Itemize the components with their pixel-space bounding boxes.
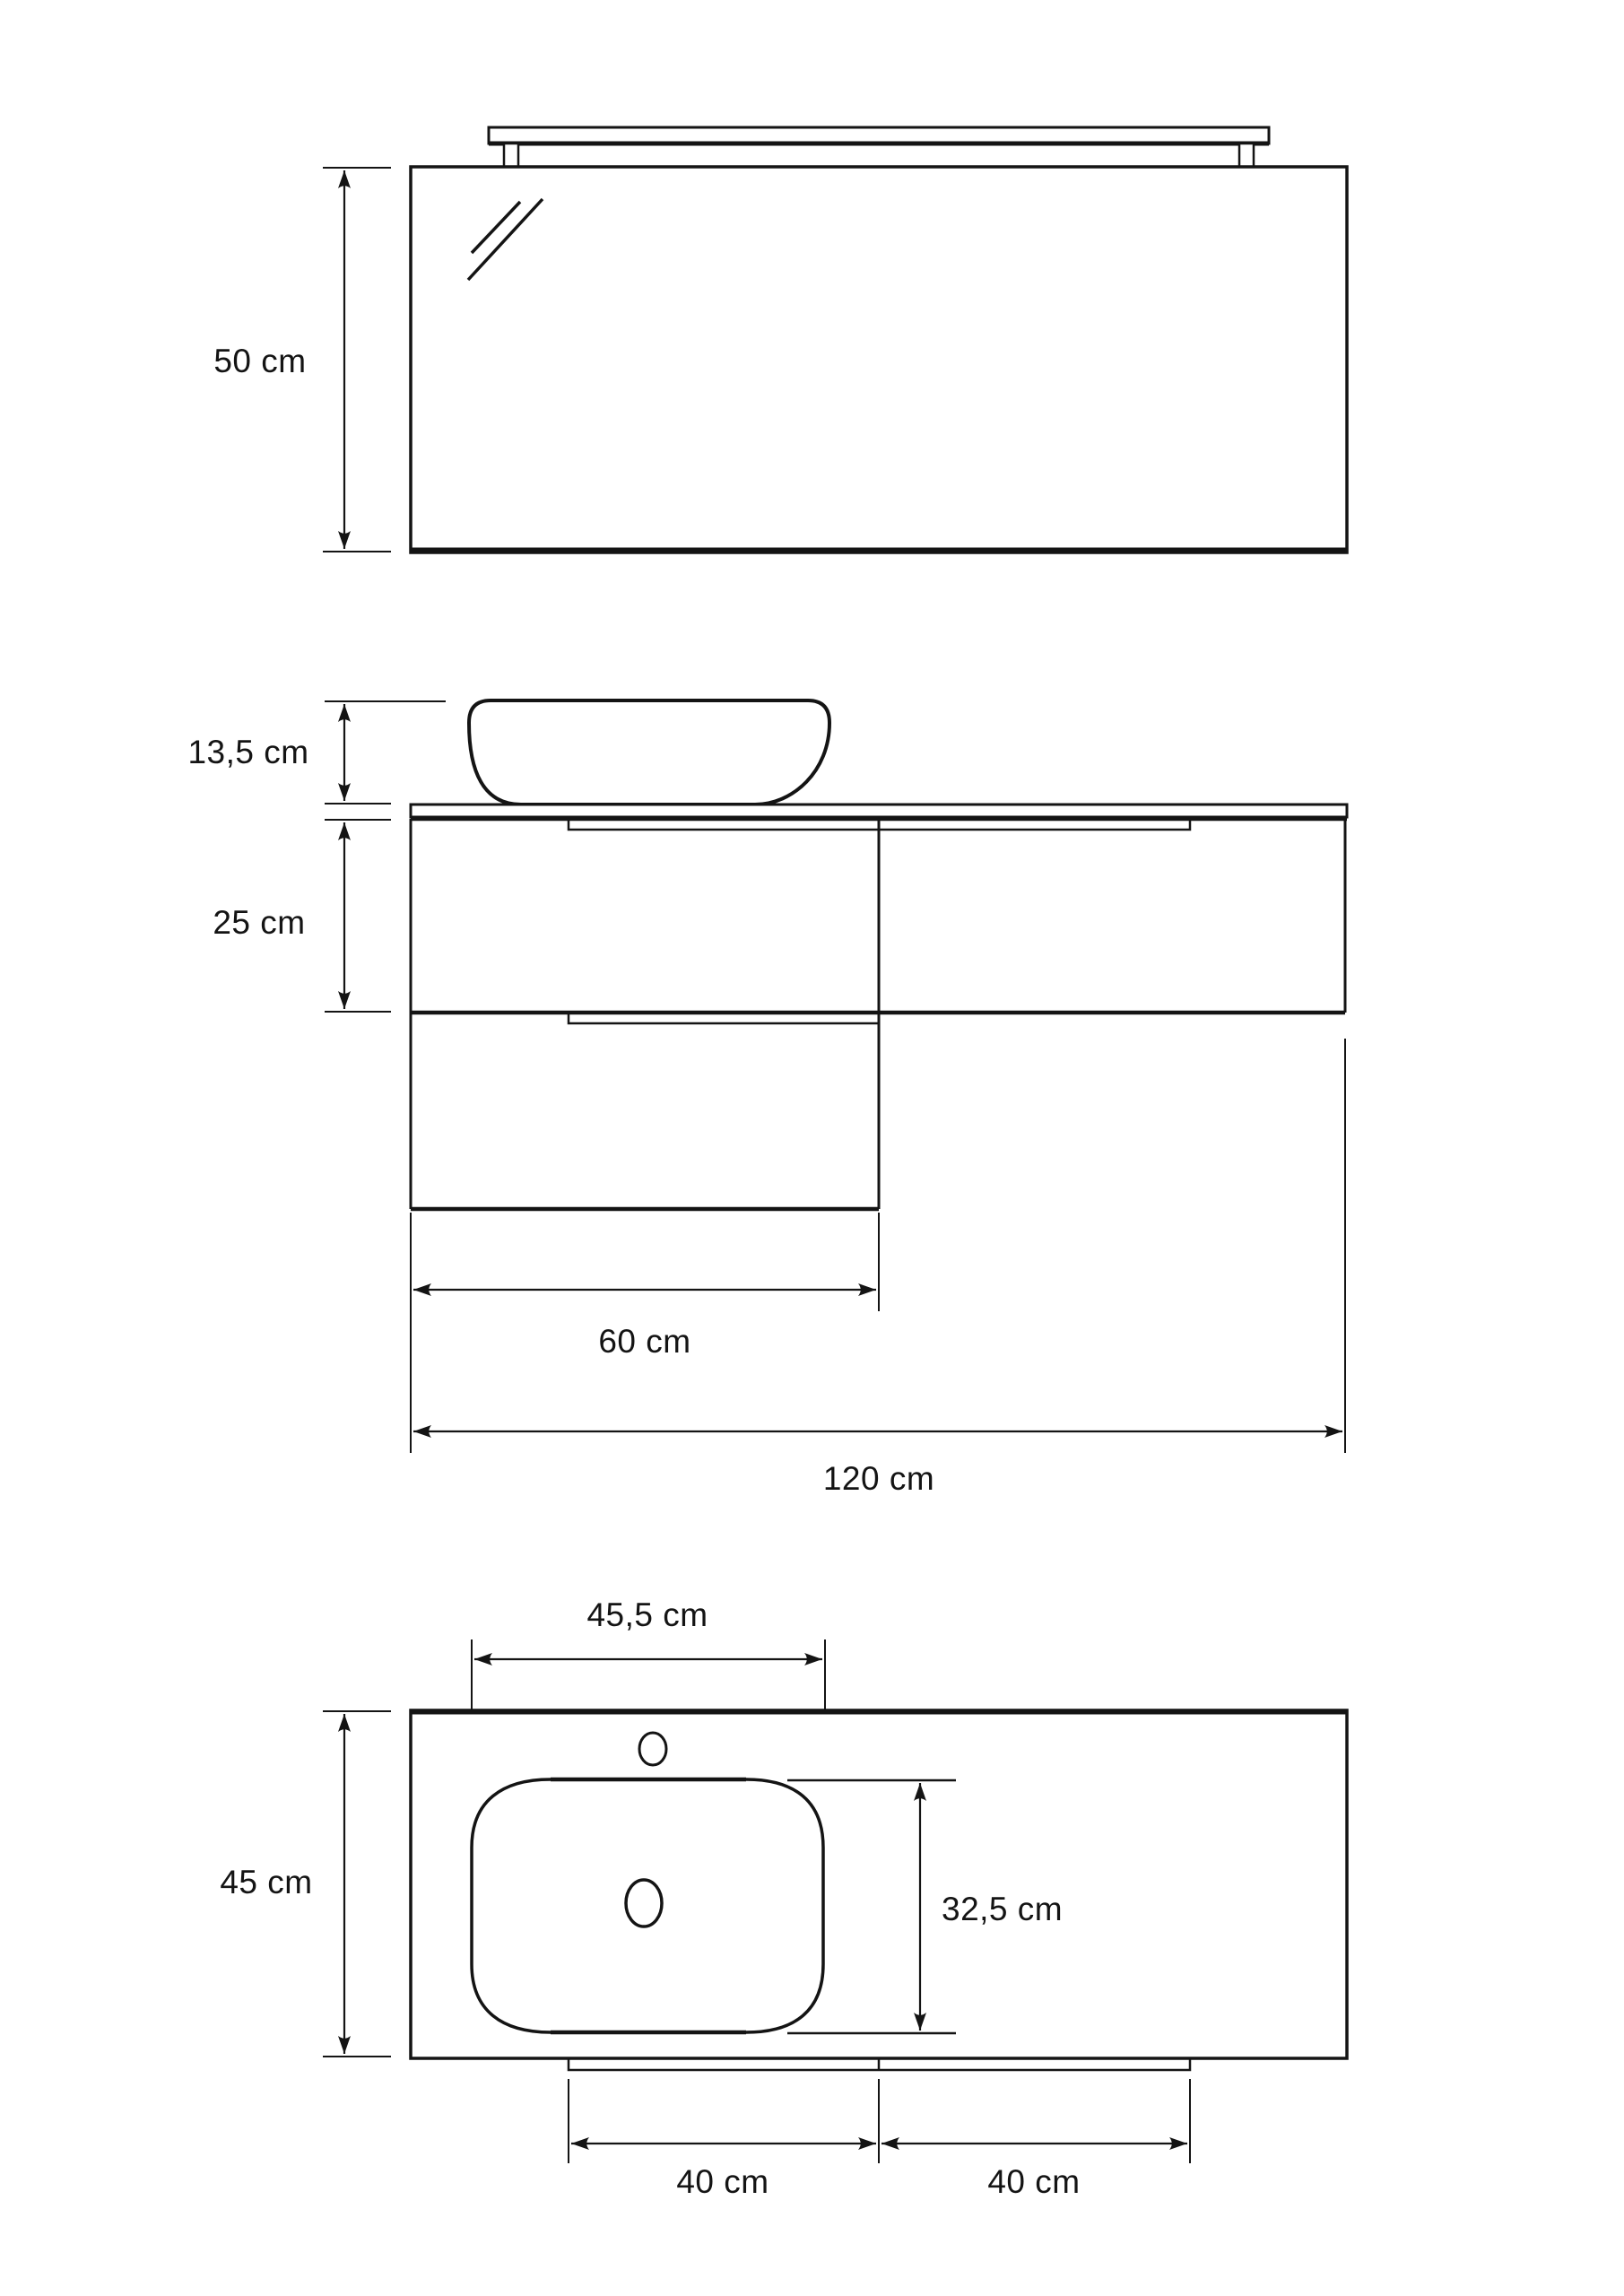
drawing-canvas: 50 cm 13,5 cm [0, 0, 1624, 2296]
dim-mirror-height: 50 cm [213, 168, 391, 552]
dim-label-total-width: 120 cm [823, 1460, 934, 1497]
light-fixture-leg-right [1239, 143, 1254, 168]
vessel-basin-front [469, 700, 829, 804]
dim-label-basin-height: 13,5 cm [187, 734, 308, 770]
dim-basin-height: 13,5 cm [187, 701, 446, 804]
faucet-hole [639, 1733, 666, 1765]
dim-label-left-drawer-width: 40 cm [676, 2163, 769, 2200]
mirror-elevation-view: 50 cm [213, 127, 1347, 552]
mirror [411, 167, 1347, 552]
light-fixture-bar [489, 127, 1269, 143]
dim-label-countertop-depth: 45 cm [220, 1864, 312, 1900]
dim-countertop-depth: 45 cm [220, 1711, 391, 2057]
dim-drawer-widths: 40 cm 40 cm [569, 2079, 1190, 2200]
dim-label-left-cabinet-width: 60 cm [598, 1323, 690, 1360]
dim-label-mirror-height: 50 cm [213, 343, 306, 379]
dim-label-basin-top-width: 45,5 cm [586, 1596, 708, 1633]
vanity-elevation-view: 13,5 cm 25 cm 60 cm 120 cm [187, 700, 1347, 1497]
light-fixture-leg-left [504, 143, 518, 168]
countertop-plan-view: 45,5 cm 45 cm 32,5 c [220, 1596, 1347, 2200]
dim-left-cabinet-width: 60 cm [411, 1213, 879, 1453]
dim-label-basin-top-depth: 32,5 cm [942, 1891, 1063, 1927]
dim-label-cabinet-height: 25 cm [213, 904, 305, 941]
dim-label-right-drawer-width: 40 cm [987, 2163, 1080, 2200]
countertop-front [411, 804, 1347, 817]
drain-hole [626, 1880, 662, 1926]
dim-cabinet-height: 25 cm [213, 820, 391, 1012]
vanity-technical-drawing: 50 cm 13,5 cm [0, 0, 1624, 2296]
